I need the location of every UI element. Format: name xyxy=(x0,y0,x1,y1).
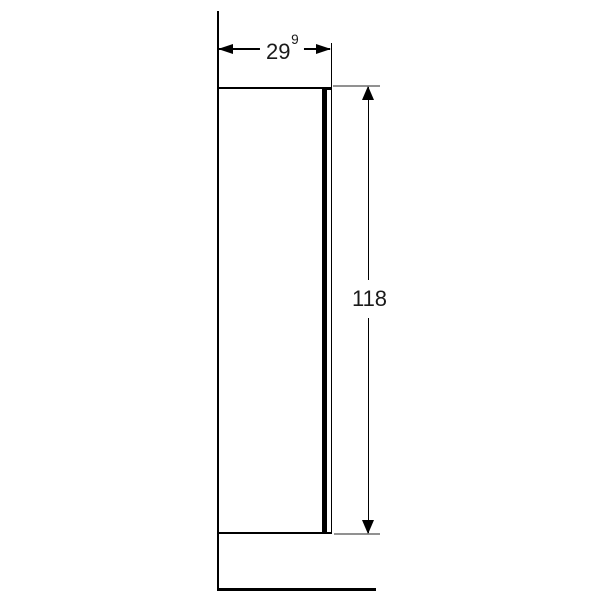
height-dimension-label: 118 xyxy=(348,280,391,318)
arrow-down-icon xyxy=(362,520,374,534)
arrow-up-icon xyxy=(362,86,374,100)
width-superscript: 9 xyxy=(291,32,299,47)
floor-line xyxy=(217,588,376,591)
dimension-drawing-canvas: 299 118 xyxy=(0,0,600,600)
cabinet-body-outline xyxy=(217,87,327,534)
width-dimension-label: 299 xyxy=(260,39,304,65)
width-value: 29 xyxy=(266,39,290,64)
arrow-right-icon xyxy=(316,44,331,54)
arrow-left-icon xyxy=(218,44,233,54)
cabinet-door-front-line xyxy=(331,43,333,534)
cabinet-door-bottom-edge xyxy=(327,532,331,535)
cabinet-door-top-edge xyxy=(327,87,331,90)
